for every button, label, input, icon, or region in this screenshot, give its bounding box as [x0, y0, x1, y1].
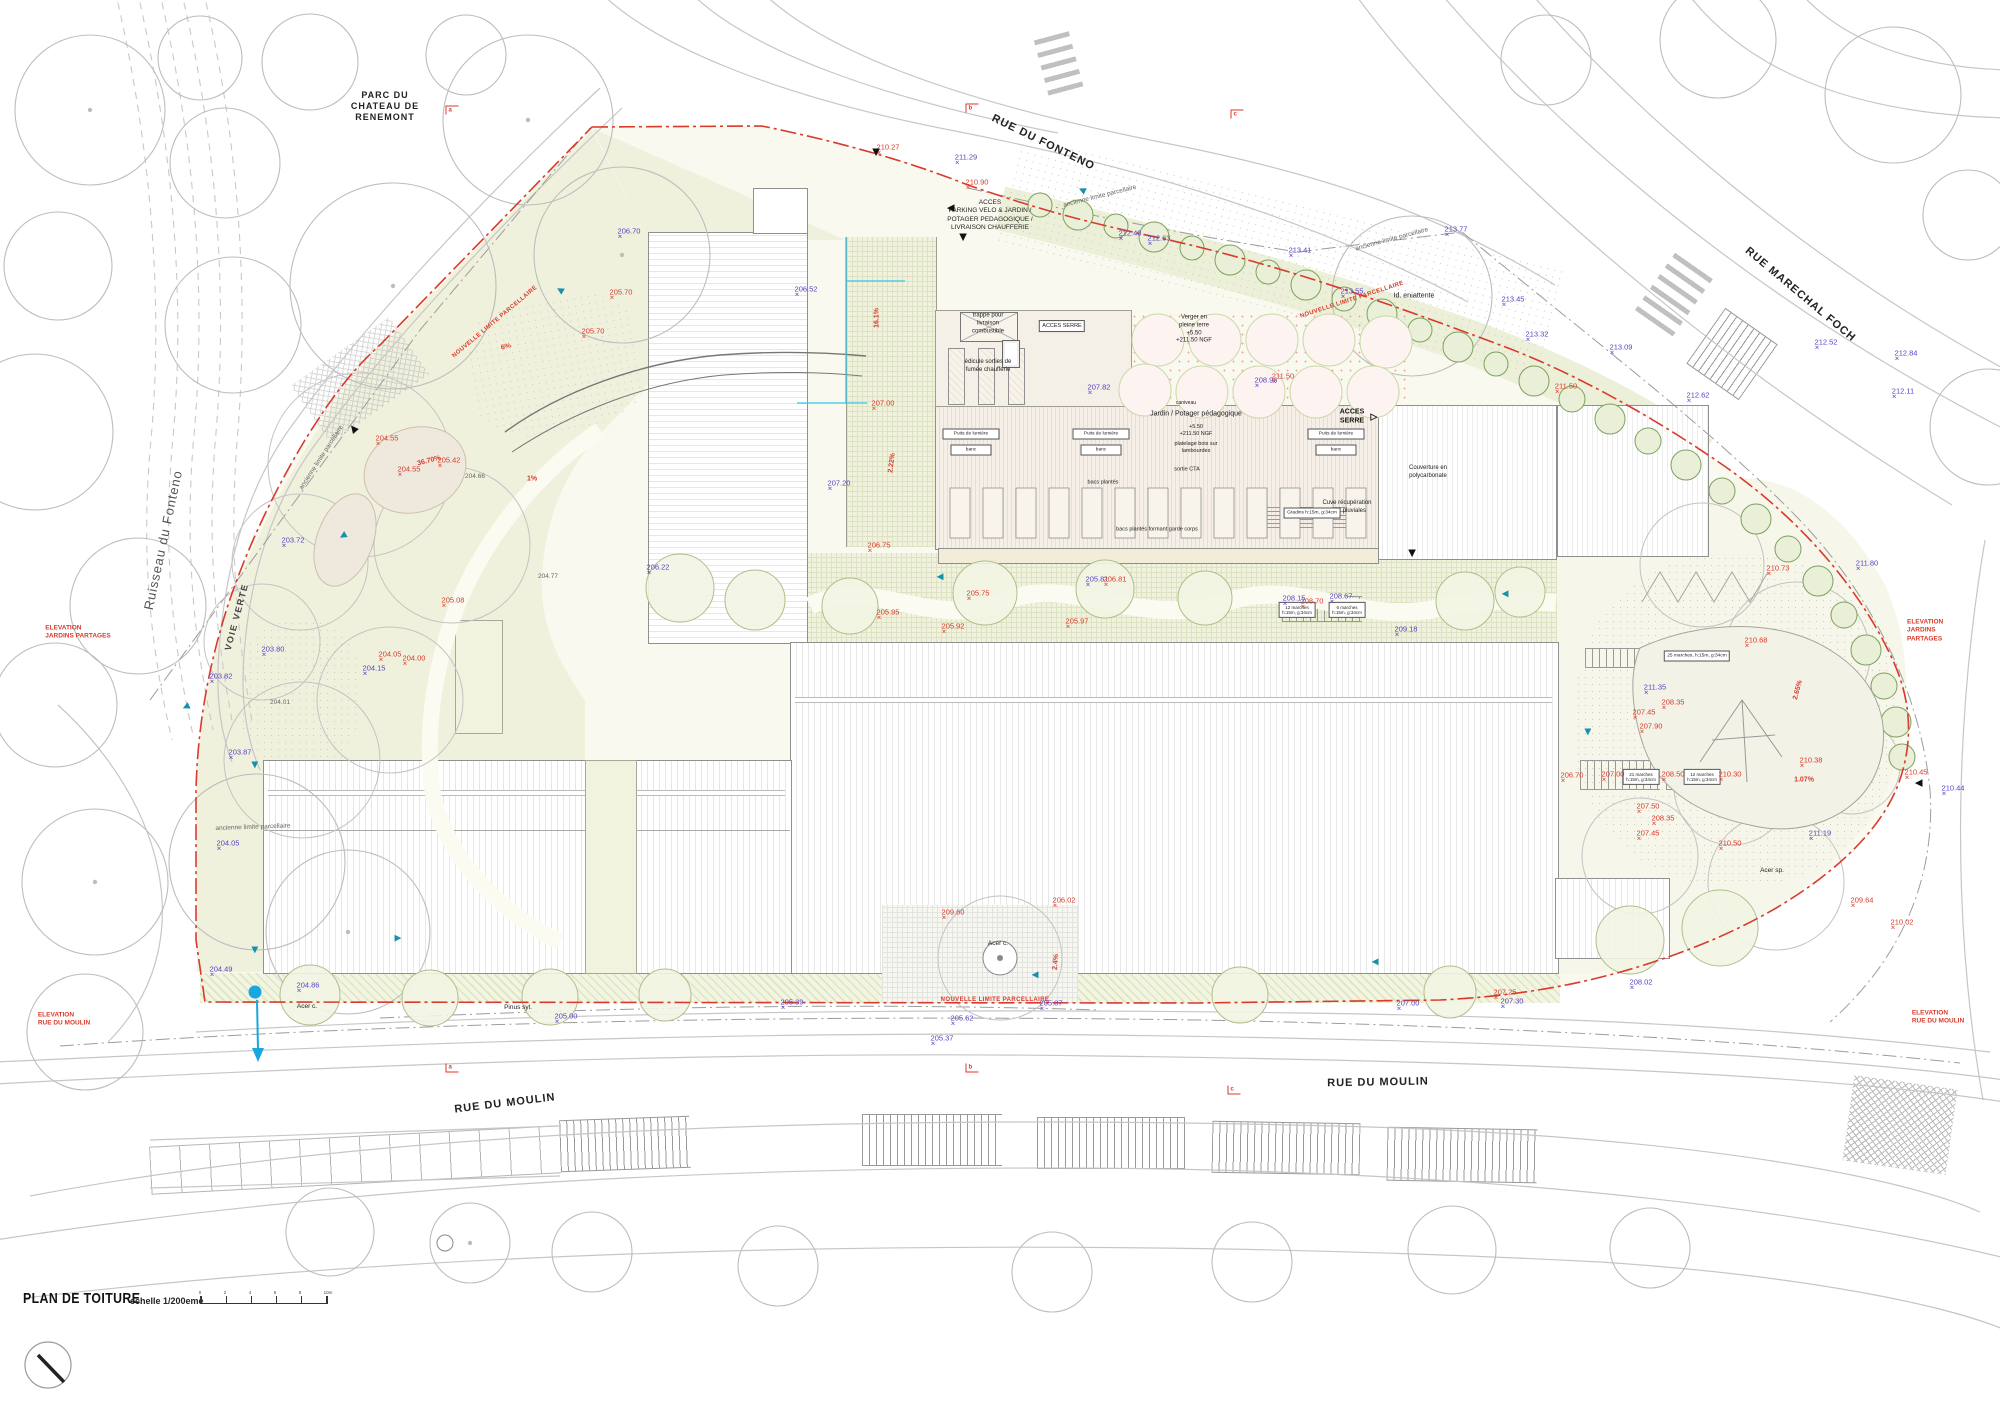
new-parcel-limit — [196, 126, 1909, 1003]
scale-bar — [200, 1296, 328, 1304]
tree-trunk-dots — [88, 108, 1414, 1245]
drainage-lines — [797, 237, 905, 403]
planter-boxes — [950, 488, 1366, 538]
garden-tree-circles — [280, 554, 1758, 1026]
site-linework — [0, 0, 2000, 1413]
orchard-tree-circles — [1119, 314, 1412, 418]
north-arrow-icon — [25, 1342, 71, 1388]
page-title: PLAN DE TOITURE — [23, 1291, 140, 1306]
scale-label: echelle 1/200eme — [130, 1297, 204, 1306]
stream-lines — [115, 0, 252, 740]
plan-canvas: RUE DU FONTENORUE MARECHAL FOCHRUE DU MO… — [0, 0, 2000, 1413]
